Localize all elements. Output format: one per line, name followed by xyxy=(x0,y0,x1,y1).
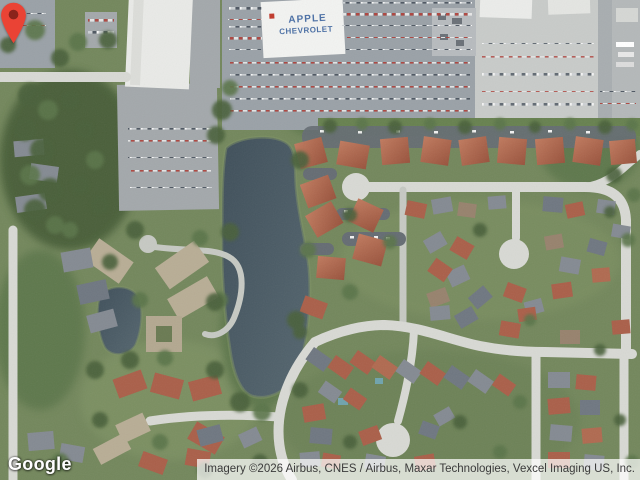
map-thumbnail[interactable]: APPLE CHEVROLET xyxy=(0,0,640,480)
google-logo[interactable]: Google xyxy=(8,454,72,475)
satellite-imagery[interactable]: APPLE CHEVROLET xyxy=(0,0,640,480)
map-attribution: Imagery ©2026 Airbus, CNES / Airbus, Max… xyxy=(197,459,640,480)
map-pin-dot xyxy=(9,10,19,20)
map-pin-body xyxy=(1,3,26,44)
map-pin-icon[interactable] xyxy=(0,0,27,46)
